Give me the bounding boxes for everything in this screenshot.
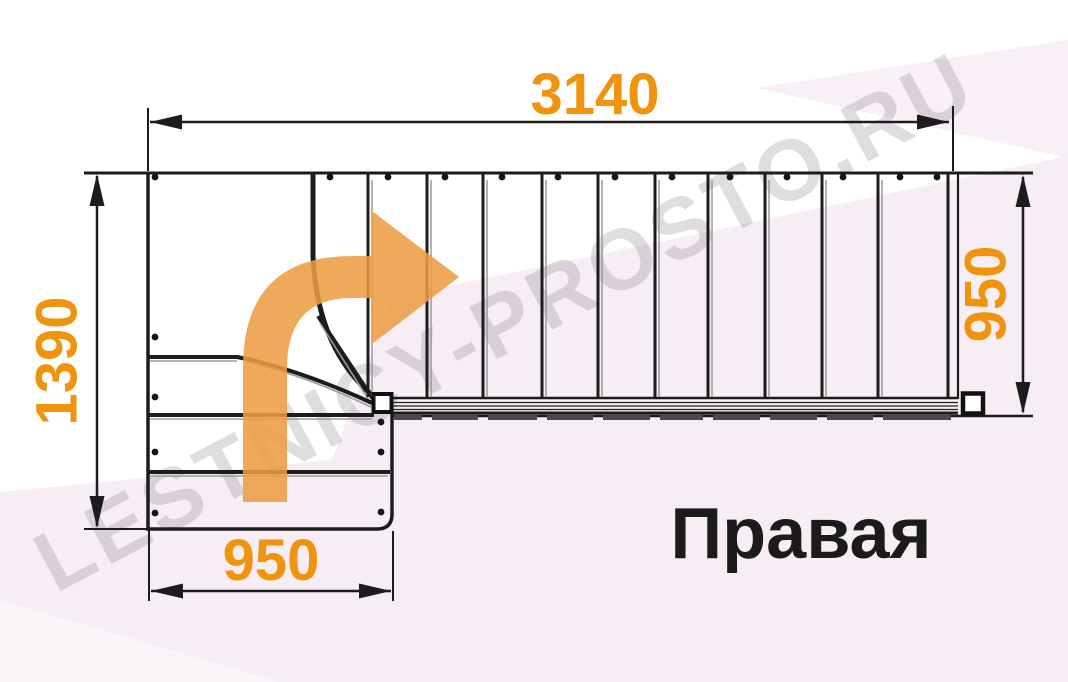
tread-edge-bar	[394, 414, 422, 420]
baluster-dot	[612, 174, 619, 181]
tread-edge-bar	[827, 414, 873, 420]
baluster-dot	[378, 419, 385, 426]
dim-top-text: 3140	[530, 62, 659, 127]
baluster-dot	[378, 509, 385, 516]
tread-edge-bar	[603, 414, 650, 420]
baluster-dot	[727, 174, 734, 181]
baluster-dot	[378, 449, 385, 456]
staircase-plan-page: LESTNICY-PROSTO.RU	[0, 0, 1068, 682]
baluster-dot	[327, 174, 334, 181]
staircase-plan-svg: LESTNICY-PROSTO.RU	[0, 0, 1068, 682]
baluster-dot	[442, 174, 449, 181]
tread-edge-bar	[883, 414, 951, 420]
dim-top-arrow-left	[150, 115, 182, 130]
baluster-dot	[152, 394, 159, 401]
dim-left-arrow-up	[90, 174, 105, 206]
baluster-dot	[152, 174, 159, 181]
tread-edge-bar	[432, 414, 478, 420]
baluster-dot	[840, 174, 847, 181]
tread-edge-bar	[488, 414, 537, 420]
baluster-dot	[897, 174, 904, 181]
baluster-dot	[669, 174, 676, 181]
newel-post-right	[963, 394, 983, 414]
baluster-dot	[555, 174, 562, 181]
dim-left-text: 1390	[25, 296, 90, 425]
baluster-dot	[152, 449, 159, 456]
baluster-dot	[152, 334, 159, 341]
tread-edge-bar	[770, 414, 817, 420]
baluster-dot	[499, 174, 506, 181]
dim-bottom-text: 950	[223, 528, 320, 593]
baluster-dot	[152, 510, 159, 517]
baluster-dot	[934, 174, 941, 181]
newel-post-center	[374, 394, 392, 412]
baluster-dot	[385, 174, 392, 181]
tread-edge-bar	[713, 414, 760, 420]
baluster-dot	[784, 174, 791, 181]
orientation-label: Правая	[670, 494, 931, 574]
dim-right-text: 950	[954, 246, 1019, 343]
tread-edge-bar	[660, 414, 703, 420]
tread-edge-bar	[547, 414, 593, 420]
